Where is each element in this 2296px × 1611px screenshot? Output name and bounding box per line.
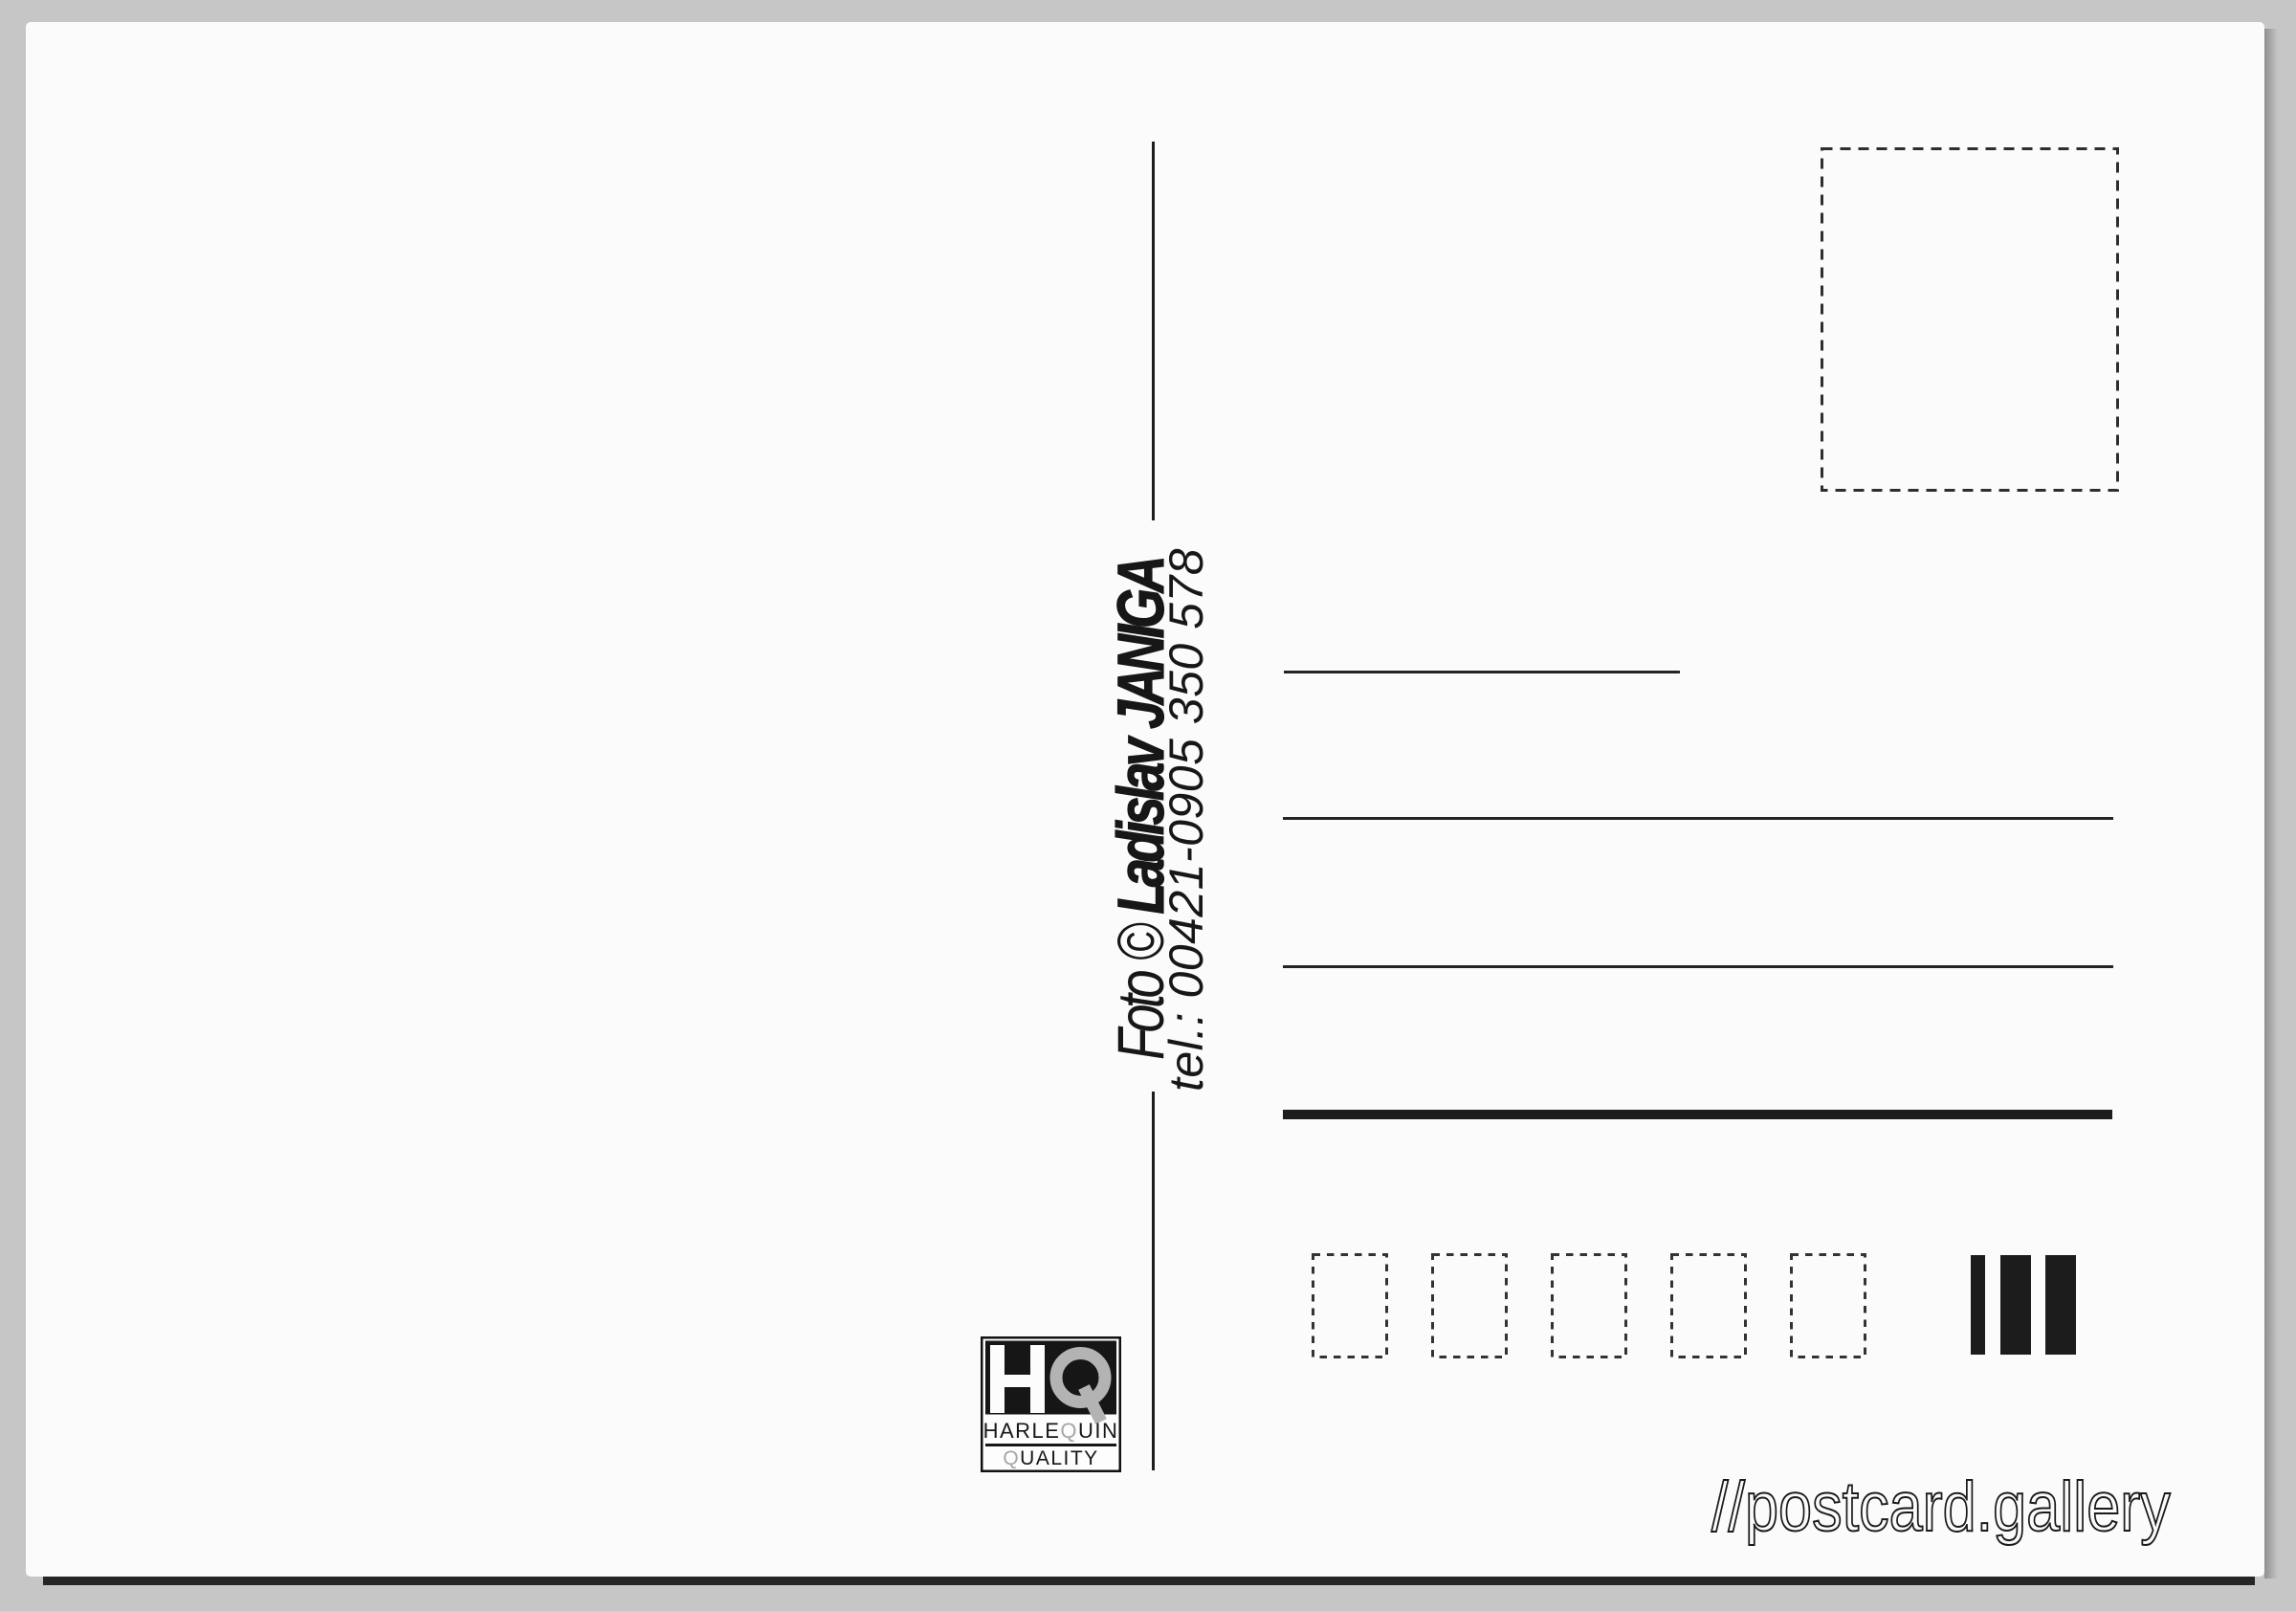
svg-text:HARLEQUIN: HARLEQUIN [983,1419,1119,1443]
svg-text:QUALITY: QUALITY [1003,1447,1098,1469]
